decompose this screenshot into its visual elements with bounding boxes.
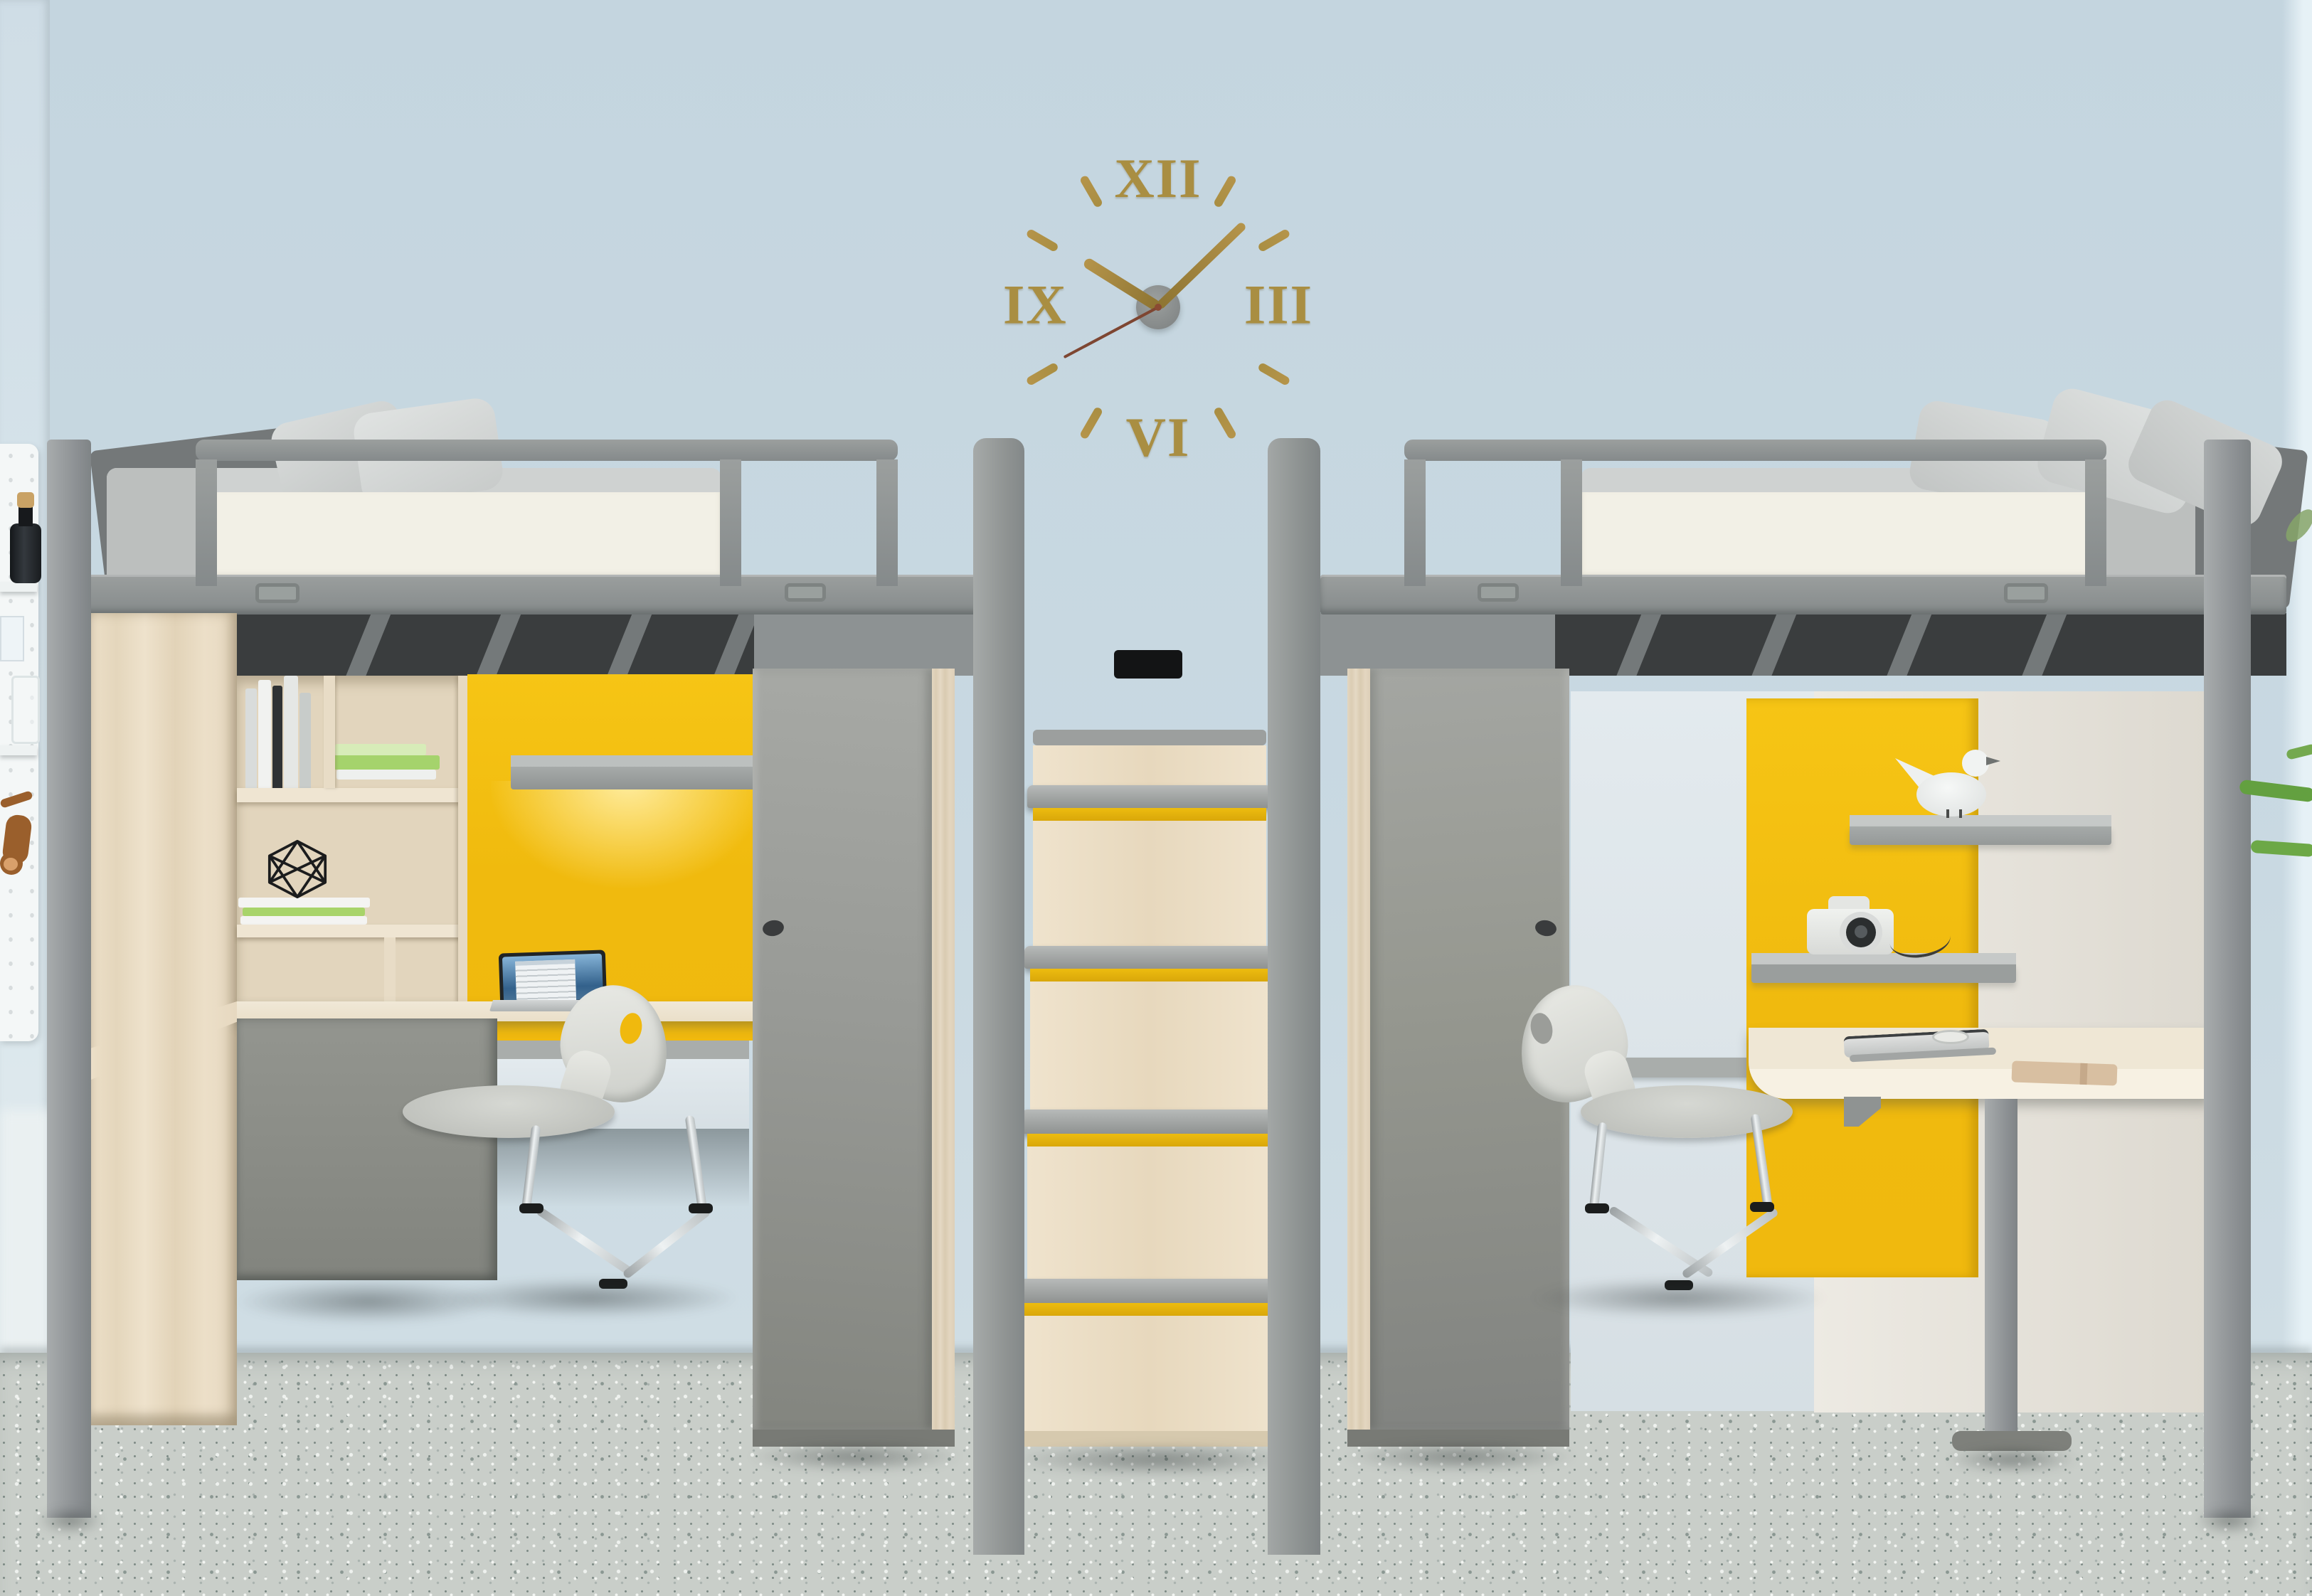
- stair-back-panel: [1033, 745, 1266, 787]
- stair-top-bar: [1033, 730, 1266, 745]
- left-under-desk-cabinet: [237, 1018, 497, 1280]
- stair-riser: [1023, 1316, 1276, 1431]
- left-bed-fascia: [201, 492, 721, 579]
- led-glow: [491, 781, 765, 888]
- clock-tick: [1257, 228, 1291, 252]
- book-spine: [272, 686, 282, 788]
- stair-partition-left: [973, 438, 1024, 1555]
- shelf-board: [237, 925, 470, 937]
- wardrobe-floor-shadow: [1343, 1441, 1578, 1472]
- bottle-neck: [18, 506, 33, 526]
- bottle-body: [10, 523, 41, 583]
- binder-green: [333, 755, 440, 770]
- bed-support-beam: [2017, 613, 2072, 676]
- bed-underside-panel: [1320, 613, 1555, 676]
- bed-support-beam: [602, 613, 657, 676]
- desk-grommet: [1932, 1030, 1969, 1044]
- notebook: [2012, 1060, 2118, 1085]
- right-shelf-front: [1850, 826, 2111, 845]
- stacked-book-white: [238, 898, 370, 908]
- book-spine: [245, 688, 257, 788]
- pegboard-jar: [11, 676, 40, 744]
- right-bed-frame-band: [1320, 575, 2286, 615]
- right-desk-leg: [1985, 1099, 2017, 1439]
- book-spine: [299, 693, 311, 788]
- bird-figurine-leg: [1946, 809, 1949, 818]
- bird-figurine-leg: [1959, 809, 1962, 818]
- under-desk-shadow: [467, 1129, 749, 1207]
- right-underbed-structure: [1320, 613, 2286, 676]
- clock-hour-hand: [1082, 257, 1161, 312]
- post-floor-shadow: [2195, 1506, 2264, 1535]
- clock-tick: [1213, 406, 1237, 440]
- mattress-side: [107, 468, 201, 579]
- stair-tread: [1024, 946, 1275, 969]
- right-guardrail-stile: [2085, 459, 2106, 586]
- floating-shelf-front: [511, 767, 758, 789]
- stair-floor-shadow: [1010, 1442, 1302, 1477]
- clock-numeral-ix: IX: [1003, 272, 1068, 336]
- bed-latch-plate: [2004, 583, 2048, 603]
- stair-wall-handle: [1114, 650, 1182, 679]
- chair-runner: [535, 1206, 635, 1278]
- left-underbed-structure: [237, 613, 1003, 676]
- laptop-window: [515, 959, 576, 1004]
- left-guardrail-stile: [196, 459, 217, 586]
- stair-stripe: [1023, 1303, 1276, 1316]
- book-spine: [284, 676, 298, 788]
- stair-stripe: [1033, 808, 1266, 821]
- left-guardrail-stile: [876, 459, 898, 586]
- book-spine: [258, 680, 271, 788]
- bed-underside-panel: [754, 613, 1003, 676]
- right-shelf-top: [1850, 815, 2111, 826]
- binder-white: [336, 770, 436, 780]
- right-wardrobe-wood-strip: [1347, 669, 1370, 1430]
- right-guardrail-top-bar: [1404, 440, 2106, 461]
- clock-tick: [1025, 362, 1059, 386]
- chair-floor-shadow: [1529, 1277, 1828, 1319]
- bed-latch-plate: [1478, 583, 1519, 602]
- stacked-book-white: [240, 916, 367, 925]
- stair-stripe: [1030, 969, 1269, 981]
- bottle-cork: [17, 492, 34, 508]
- bird-figurine-body: [1916, 772, 1986, 816]
- room-scene: XII III VI IX: [0, 0, 2312, 1596]
- right-bed-post: [2204, 440, 2251, 1518]
- right-shelf-top: [1751, 953, 2016, 964]
- right-guardrail-stile: [1561, 459, 1582, 586]
- chair-floor-shadow: [441, 1277, 740, 1319]
- left-chair-seat: [403, 1085, 615, 1138]
- monkey-figurine-face: [4, 858, 18, 871]
- notebook-strap: [2079, 1063, 2087, 1085]
- pegboard-card: [0, 616, 24, 661]
- stair-riser: [1033, 821, 1266, 947]
- chair-foot: [1750, 1202, 1774, 1212]
- pegboard-shelf: [0, 745, 37, 755]
- clock-second-hand: [1064, 306, 1159, 358]
- clock-tick: [1025, 228, 1059, 252]
- clock-numeral-iii: III: [1244, 272, 1313, 336]
- shelf-board: [237, 788, 470, 802]
- camera-lens-core: [1855, 925, 1867, 938]
- stair-tread: [1022, 1110, 1278, 1134]
- desk-leg-shadow: [1946, 1445, 2079, 1474]
- floating-shelf-top: [511, 755, 758, 767]
- stair-tread: [1027, 785, 1272, 808]
- shelf-divider: [324, 676, 335, 788]
- right-shelf-front: [1751, 964, 2016, 983]
- stair-stripe: [1027, 1134, 1272, 1147]
- stacked-book-green: [243, 908, 365, 916]
- left-wardrobe-door: [753, 669, 932, 1430]
- left-bed-post: [47, 440, 91, 1518]
- clock-numeral-xii: XII: [1114, 147, 1202, 211]
- left-bed-frame-band: [85, 575, 1003, 615]
- stair-partition-right: [1268, 438, 1320, 1555]
- bed-support-beam: [1611, 613, 1666, 676]
- right-guardrail-stile: [1404, 459, 1426, 586]
- stair-riser: [1027, 1147, 1272, 1280]
- chair-foot: [689, 1203, 713, 1213]
- bed-support-beam: [341, 613, 396, 676]
- bird-figurine-head: [1962, 750, 1989, 777]
- bed-support-beam: [1746, 613, 1801, 676]
- wardrobe-floor-shadow: [747, 1441, 963, 1472]
- clock-tick: [1079, 174, 1103, 208]
- bed-support-beam: [472, 613, 526, 676]
- bed-latch-plate: [255, 583, 299, 603]
- wireframe-ornament: [263, 839, 332, 899]
- chair-foot: [1585, 1203, 1609, 1213]
- shelf-divider: [384, 937, 396, 1003]
- left-guardrail-top-bar: [196, 440, 898, 461]
- wall-clock: XII III VI IX: [1002, 151, 1315, 464]
- stair-riser: [1030, 981, 1269, 1111]
- pegboard-shelf: [0, 582, 37, 592]
- clock-numeral-vi: VI: [1126, 405, 1191, 469]
- clock-tick: [1257, 362, 1291, 386]
- bed-latch-plate: [785, 583, 826, 602]
- chair-foot: [519, 1203, 543, 1213]
- post-floor-shadow: [37, 1506, 104, 1535]
- chair-runner: [622, 1207, 711, 1280]
- left-guardrail-stile: [720, 459, 741, 586]
- clock-tick: [1213, 174, 1237, 208]
- clock-pivot: [1155, 304, 1162, 311]
- right-bed-fascia: [1581, 492, 2101, 579]
- binder-pale: [335, 744, 426, 755]
- stair-tread: [1017, 1279, 1280, 1303]
- clock-minute-hand: [1155, 221, 1247, 310]
- left-wardrobe-wood-strip: [932, 669, 955, 1430]
- bed-support-beam: [1882, 613, 1936, 676]
- clock-tick: [1079, 406, 1103, 440]
